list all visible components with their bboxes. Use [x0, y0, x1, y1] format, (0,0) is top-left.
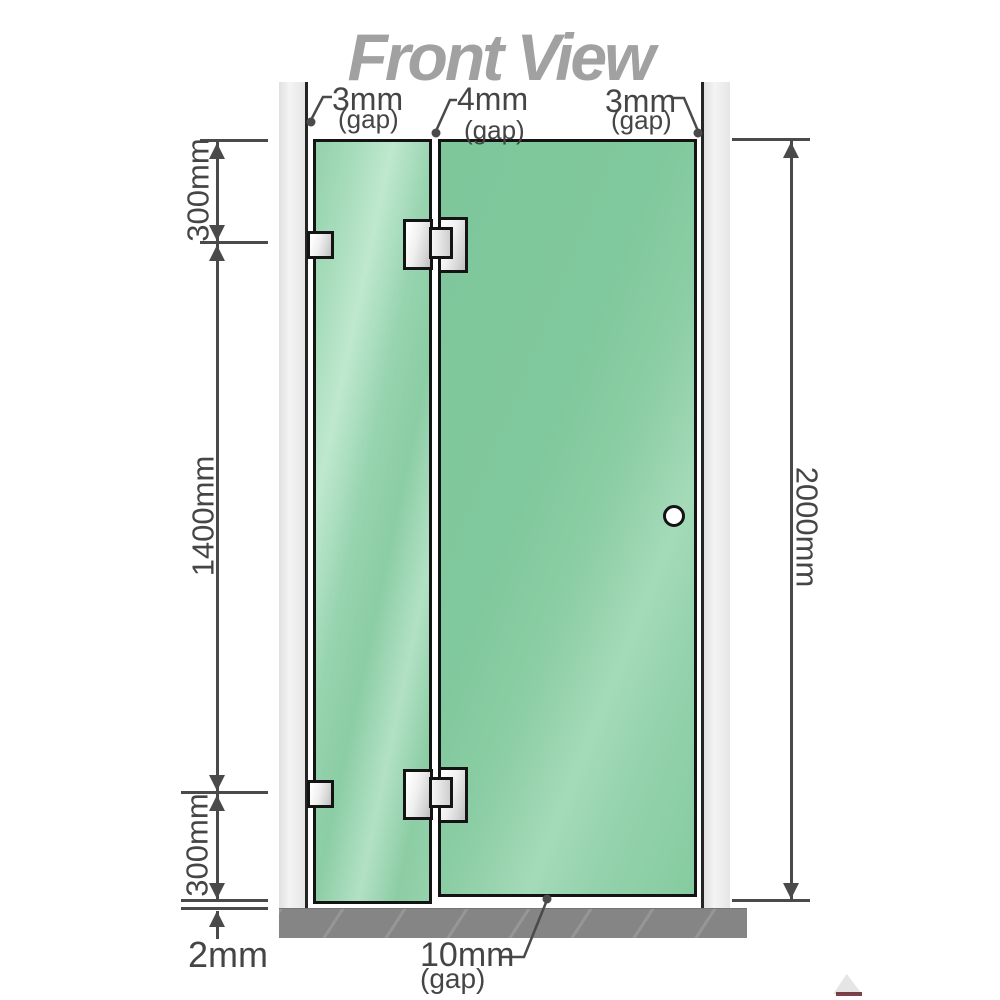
- leader-line-gap-middle: [436, 100, 457, 131]
- hinge-bottom-knuckle: [429, 777, 453, 808]
- door-knob: [663, 505, 685, 527]
- wall-bracket-bottom: [307, 780, 334, 808]
- leader-dot: [432, 129, 441, 138]
- dimension-label-2mm: 2mm: [188, 937, 268, 973]
- dimension-tick: [181, 899, 268, 902]
- glass-door-panel: [438, 139, 697, 897]
- dimension-arrow: [783, 142, 799, 158]
- dimension-label-bottom-300: 300mm: [182, 793, 213, 896]
- dimension-arrow: [209, 245, 225, 261]
- corner-artifact: [828, 974, 862, 994]
- gap-label-middle-value: 4mm: [457, 83, 528, 115]
- left-wall: [279, 82, 305, 908]
- gap-label-middle-unit: (gap): [464, 117, 525, 143]
- leader-line-gap-right: [673, 98, 698, 131]
- dimension-tick: [181, 907, 268, 910]
- leader-line-gap-left: [311, 97, 332, 120]
- dimension-tick: [732, 138, 810, 141]
- dimension-label-1400: 1400mm: [188, 456, 219, 577]
- dimension-arrow: [209, 911, 225, 927]
- gap-label-right-unit: (gap): [611, 107, 672, 133]
- corner-artifact-line: [836, 992, 862, 996]
- dimension-tick: [732, 899, 810, 902]
- hinge-top-knuckle: [429, 227, 453, 259]
- dimension-label-2000: 2000mm: [792, 467, 823, 588]
- dimension-arrow: [209, 775, 225, 791]
- front-view-diagram: Front View: [0, 0, 1000, 1000]
- right-wall: [704, 82, 730, 908]
- gap-label-bottom-unit: (gap): [420, 965, 485, 993]
- floor-base: [279, 908, 747, 938]
- dimension-arrow: [783, 883, 799, 899]
- gap-label-left-unit: (gap): [338, 106, 399, 132]
- dimension-label-top-300: 300mm: [183, 138, 214, 241]
- wall-bracket-top: [307, 231, 334, 259]
- right-wall-edge-line: [701, 82, 704, 908]
